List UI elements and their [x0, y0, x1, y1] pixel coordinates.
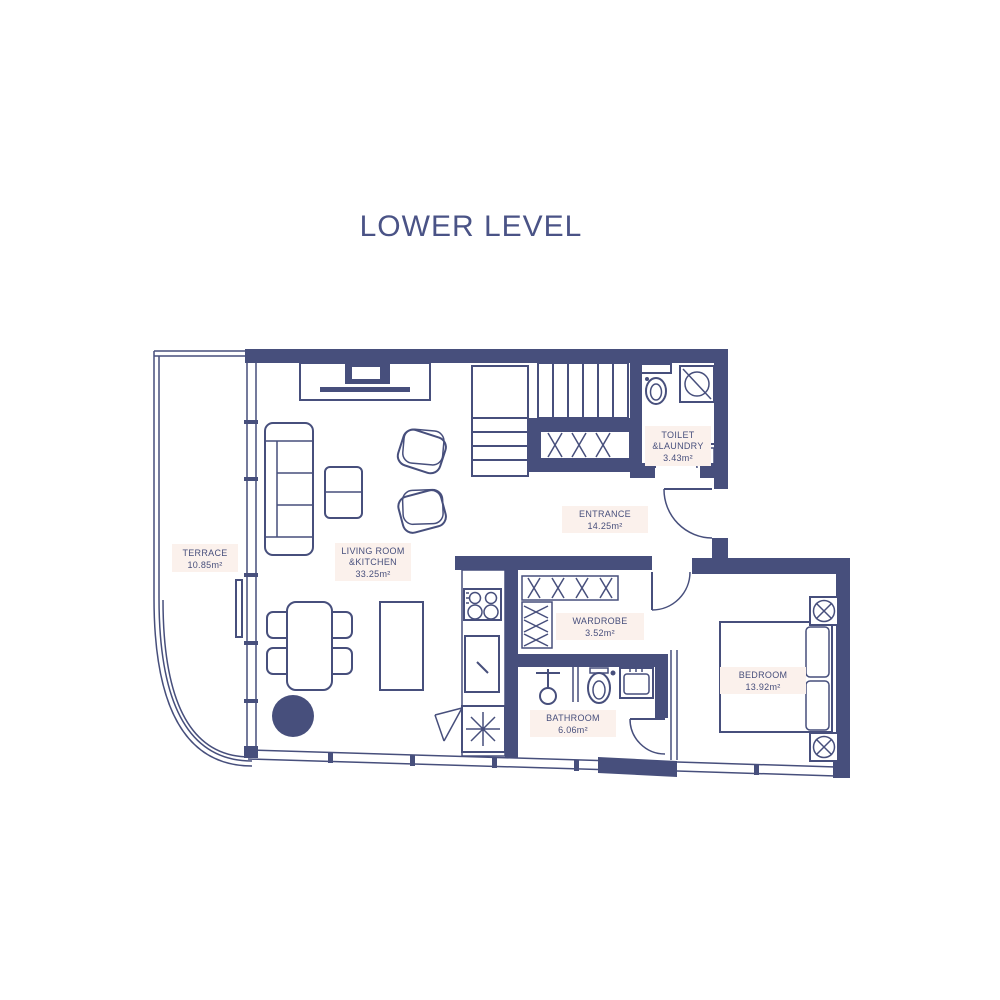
pouf [272, 695, 314, 737]
room-area: 14.25m² [587, 521, 622, 531]
dining-table [267, 602, 352, 690]
column-icon [810, 597, 838, 625]
pillow [806, 681, 829, 730]
room-area: 3.52m² [585, 628, 615, 638]
wardrobe-label: WARDROBE 3.52m² [556, 613, 644, 640]
counter-sink-icon [465, 636, 499, 692]
sofa [265, 423, 313, 555]
room-name: &LAUNDRY [652, 441, 703, 451]
toilet-icon [641, 364, 671, 404]
room-name: WARDROBE [572, 616, 627, 626]
room-area: 3.43m² [663, 453, 693, 463]
room-name: TERRACE [182, 548, 227, 558]
column-icon [810, 733, 838, 761]
floor-plan: TERRACE 10.85m² LIVING ROOM &KITCHEN 33.… [0, 0, 1000, 1000]
stove-icon [464, 589, 501, 620]
room-name: &KITCHEN [349, 557, 397, 567]
bottom-glass-facade [248, 750, 850, 778]
bathroom-door [630, 719, 665, 754]
washing-machine-icon [680, 366, 714, 402]
room-name: ENTRANCE [579, 509, 631, 519]
bathroom-label: BATHROOM 6.06m² [530, 710, 616, 737]
living-room-label: LIVING ROOM &KITCHEN 33.25m² [335, 543, 411, 581]
entry-door [664, 489, 712, 538]
kitchen-counter [435, 570, 505, 756]
room-area: 6.06m² [558, 725, 588, 735]
hanger-icon [548, 433, 610, 457]
floor-plan-page: LOWER LEVEL [0, 0, 1000, 1000]
room-name: BATHROOM [546, 713, 600, 723]
room-name: TOILET [661, 430, 694, 440]
shower-icon [536, 667, 578, 704]
entrance-label: ENTRANCE 14.25m² [562, 506, 648, 533]
bath-toilet-icon [588, 668, 616, 703]
room-name: LIVING ROOM [341, 546, 404, 556]
bedroom-door [652, 572, 690, 610]
fridge-icon [435, 706, 505, 752]
toilet-laundry-label: TOILET &LAUNDRY 3.43m² [645, 426, 711, 466]
room-name: BEDROOM [739, 670, 788, 680]
room-area: 13.92m² [745, 682, 780, 692]
living-glass-facade [236, 363, 258, 758]
terrace-label: TERRACE 10.85m² [172, 544, 238, 572]
hanger-icon [524, 606, 548, 646]
room-area: 10.85m² [187, 560, 222, 570]
armchair [395, 427, 448, 476]
armchair [396, 488, 448, 535]
entrance-closet [540, 431, 630, 459]
terrace-sliding-door [236, 580, 242, 637]
bath-sink-icon [620, 668, 653, 698]
coffee-table [325, 467, 362, 518]
bedroom-label: BEDROOM 13.92m² [720, 667, 806, 694]
pillow [806, 627, 829, 677]
room-area: 33.25m² [355, 569, 390, 579]
kitchen-island [380, 602, 423, 690]
hanger-icon [528, 578, 612, 598]
